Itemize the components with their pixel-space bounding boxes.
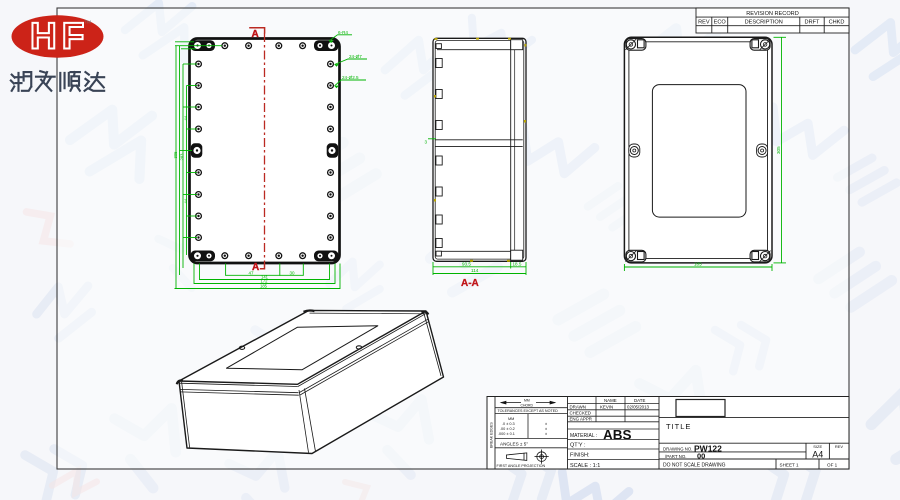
svg-text:24-Ø2.5: 24-Ø2.5 — [342, 75, 359, 80]
svg-text:A4: A4 — [812, 450, 823, 460]
svg-text:93.5: 93.5 — [462, 261, 471, 266]
svg-text:REV: REV — [698, 20, 710, 26]
svg-text:MM: MM — [524, 399, 530, 403]
svg-text:.000 ± 0.1: .000 ± 0.1 — [498, 432, 515, 436]
svg-text:HF: HF — [30, 16, 89, 57]
svg-text:18.5: 18.5 — [513, 261, 522, 266]
svg-text:DATE: DATE — [634, 398, 645, 403]
svg-text:MM: MM — [508, 417, 514, 421]
svg-text:FIRST ANGLE PROJECTION: FIRST ANGLE PROJECTION — [497, 464, 546, 468]
svg-text:.00 ± 0.2: .00 ± 0.2 — [500, 427, 515, 431]
svg-text:BREAK EDGES: BREAK EDGES — [490, 422, 494, 448]
svg-text:SIZE: SIZE — [813, 444, 822, 449]
svg-text:A-A: A-A — [461, 278, 479, 289]
svg-text:ECO: ECO — [714, 20, 727, 26]
svg-text:ANGLES ± 5°: ANGLES ± 5° — [500, 441, 528, 446]
svg-text:ABS: ABS — [603, 428, 632, 443]
svg-text:CHORD: CHORD — [521, 403, 534, 407]
svg-text:44: 44 — [183, 198, 188, 203]
svg-text:NAME: NAME — [604, 398, 617, 403]
svg-text:DRAWING NO.: DRAWING NO. — [663, 446, 692, 451]
svg-text:KEVIN: KEVIN — [600, 404, 613, 409]
svg-text:REVISION RECORD: REVISION RECORD — [746, 11, 799, 17]
svg-text:TOLERANCES EXCEPT AS NOTED: TOLERANCES EXCEPT AS NOTED — [498, 409, 559, 413]
svg-text:SHEET 1: SHEET 1 — [780, 463, 800, 468]
svg-text:114: 114 — [471, 268, 479, 273]
svg-text:305: 305 — [776, 146, 781, 154]
svg-text:.0 ± 0.3: .0 ± 0.3 — [502, 422, 515, 426]
svg-text:185: 185 — [260, 284, 268, 289]
svg-text:±: ± — [545, 432, 547, 436]
svg-text:283: 283 — [180, 153, 185, 161]
svg-text:±: ± — [545, 422, 547, 426]
svg-text:DO NOT SCALE DRAWING: DO NOT SCALE DRAWING — [663, 463, 726, 469]
svg-text:6-R4: 6-R4 — [338, 30, 348, 35]
svg-text:00: 00 — [697, 452, 705, 461]
svg-text:30: 30 — [290, 270, 296, 275]
svg-text:MATERIAL :: MATERIAL : — [570, 433, 597, 439]
svg-text:FINISH:: FINISH: — [570, 453, 590, 459]
svg-text:DESCRIPTION: DESCRIPTION — [745, 20, 783, 26]
svg-text:±: ± — [545, 427, 547, 431]
svg-text:305: 305 — [173, 151, 178, 159]
svg-text:REV: REV — [835, 444, 844, 449]
svg-text:TM: TM — [85, 20, 92, 25]
svg-text:QT’Y :: QT’Y : — [570, 443, 586, 449]
svg-text:02/05/2013: 02/05/2013 — [627, 404, 650, 409]
svg-text:185: 185 — [694, 262, 702, 267]
svg-text:/PART NO.: /PART NO. — [665, 454, 686, 459]
svg-text:CHKD: CHKD — [829, 20, 845, 26]
svg-text:ENG APPR: ENG APPR — [570, 417, 592, 422]
svg-text:44: 44 — [183, 115, 188, 120]
svg-text:24-Ø7: 24-Ø7 — [349, 54, 362, 59]
svg-text:47: 47 — [249, 270, 255, 275]
svg-text:A: A — [252, 29, 259, 40]
svg-text:OF 1: OF 1 — [827, 463, 838, 468]
svg-text:CHECKED: CHECKED — [570, 411, 591, 416]
svg-text:SCALE : 1:1: SCALE : 1:1 — [570, 463, 600, 469]
svg-text:DRAWN: DRAWN — [570, 404, 586, 409]
svg-text:DRFT: DRFT — [805, 20, 820, 26]
svg-text:TITLE: TITLE — [666, 422, 691, 431]
